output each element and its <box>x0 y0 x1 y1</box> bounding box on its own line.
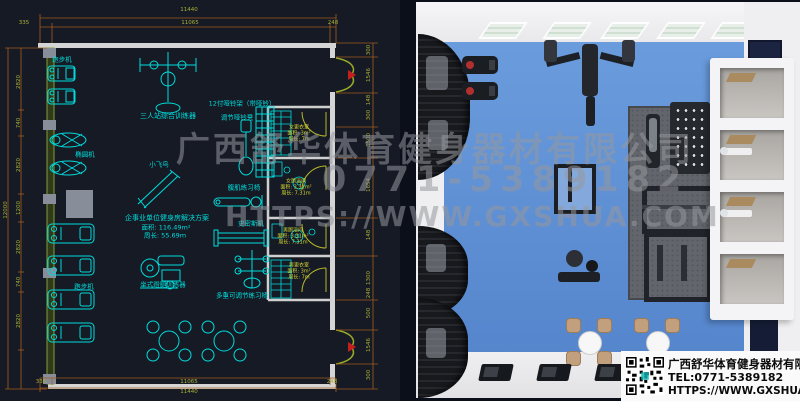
changing-rooms-block <box>710 58 794 320</box>
leg-press-3d <box>556 248 604 290</box>
spin-bike-1 <box>462 56 498 74</box>
dim-left-2: 740 <box>16 118 22 129</box>
room-women-locker-perimeter: 周长: 7m <box>288 137 309 143</box>
room-cell-1 <box>720 68 784 118</box>
dim-left-1: 2820 <box>16 75 22 89</box>
room-cell-4 <box>720 254 784 304</box>
dim-right-6: 1654 <box>366 178 372 192</box>
label-elliptical: 椭圆机 <box>75 151 95 158</box>
room-women-bath-perimeter: 周长: 7.31m <box>281 191 310 197</box>
multi-station-3d <box>544 38 634 130</box>
cad-floor-plan: 11440 335 11065 248 335 11065 248 11440 … <box>0 0 400 401</box>
dim-left-5: 2820 <box>16 240 22 254</box>
dim-bottom-seg-335: 335 <box>36 379 47 385</box>
room-men-bath-perimeter: 周长: 7.31m <box>278 240 307 246</box>
cable-machine-3d <box>554 164 596 214</box>
barbell-rack-3d <box>642 186 716 234</box>
table-set-1 <box>566 316 612 368</box>
label-treadmill-bottom: 跑步机 <box>74 283 94 290</box>
label-ab-bench: 腹肌练习椅 <box>228 184 261 191</box>
render-3d-view <box>400 0 800 401</box>
solution-perimeter: 周长: 55.69m <box>144 232 186 239</box>
dim-right-3: 148 <box>366 95 372 106</box>
label-treadmill-top: 跑步机 <box>52 56 72 63</box>
dim-top-seg-11065: 11065 <box>181 20 199 26</box>
door-marker-bottom <box>348 342 356 352</box>
wall-art-bottom <box>750 318 778 354</box>
dim-bottom-seg-248: 248 <box>327 379 338 385</box>
power-rack-3d <box>644 232 712 302</box>
label-cable-fly: 小飞鸟 <box>149 161 169 168</box>
card-tel: TEL:0771-5389182 <box>668 371 783 384</box>
dim-right-9: 248 <box>366 288 372 299</box>
spin-bike-2 <box>462 82 498 100</box>
room-cell-3 <box>720 192 784 242</box>
dim-right-8: 1300 <box>366 271 372 285</box>
label-adjustable-bench: 多重可调节练习椅 <box>216 292 268 299</box>
dumbbell-rack-3d <box>670 102 710 174</box>
dim-right-2: 1546 <box>366 68 372 82</box>
label-dumbbell-rack: 12付哑铃架（带哑铃） <box>209 100 276 107</box>
bench-3d <box>646 114 660 168</box>
dim-right-11: 1546 <box>366 338 372 352</box>
label-leg-press: 坐式蹬腿训练器 <box>140 281 186 288</box>
card-url: HTTPS://WWW.GXSHUA.COM <box>668 385 800 397</box>
dim-right-5: 1500 <box>366 133 372 147</box>
room-men-locker-perimeter: 周长: 7m <box>288 275 309 281</box>
label-smith-machine: 史密斯机 <box>238 220 264 227</box>
dim-right-7: 148 <box>366 230 372 241</box>
dim-top-seg-248: 248 <box>328 20 339 26</box>
qr-code <box>626 356 664 396</box>
gym-layout-screenshot: 11440 335 11065 248 335 11065 248 11440 … <box>0 0 800 401</box>
dim-right-1: 300 <box>366 45 372 56</box>
dim-right-10: 500 <box>366 308 372 319</box>
room-cell-2 <box>720 130 784 180</box>
dim-left-total: 12000 <box>3 201 9 219</box>
dim-left-6: 740 <box>16 277 22 288</box>
company-info-card: 广西舒华体育健身器材有限公司 TEL:0771-5389182 HTTPS://… <box>621 351 800 401</box>
label-dumbbell-bench: 调节哑铃凳 <box>221 114 254 121</box>
door-marker-top <box>348 70 356 80</box>
dim-left-4: 1200 <box>16 201 22 215</box>
display-mat-1 <box>478 364 514 381</box>
dim-right-4: 300 <box>366 110 372 121</box>
dim-left-7: 2820 <box>16 314 22 328</box>
dim-bottom-total: 11440 <box>180 389 198 395</box>
display-mat-2 <box>536 364 572 381</box>
label-multi-station: 三人站综合训练器 <box>140 113 196 121</box>
dim-top-total: 11440 <box>180 7 198 13</box>
dim-bottom-seg-11065: 11065 <box>180 379 198 385</box>
dim-top-seg-335: 335 <box>19 20 30 26</box>
card-company-name: 广西舒华体育健身器材有限公司 <box>668 356 800 372</box>
solution-title: 企事业单位健身房解决方案 <box>125 215 209 223</box>
dim-left-3: 2820 <box>16 158 22 172</box>
dim-right-12: 300 <box>366 370 372 381</box>
